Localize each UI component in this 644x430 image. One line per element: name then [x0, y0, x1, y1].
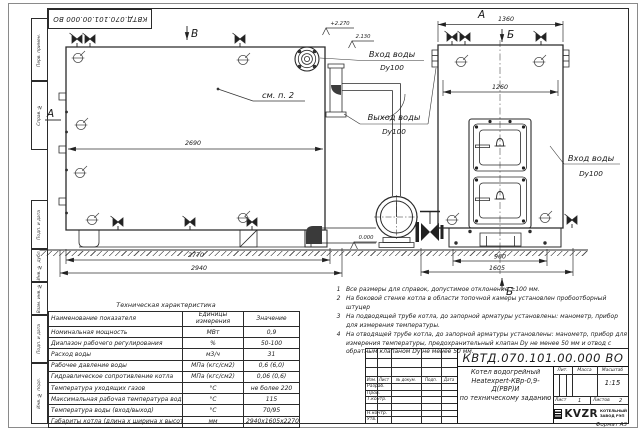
table-header-row: Наименование показателя Единицы измерени…	[49, 312, 300, 327]
elevation-ground: 0.000	[359, 235, 375, 241]
valve-icon	[70, 33, 83, 47]
note-item: 2 На боковой стенке котла в области топо…	[331, 295, 630, 312]
elevation-marks	[323, 28, 378, 249]
format-note: Формат А3	[547, 422, 627, 428]
rev-col-izm: Изм.	[366, 377, 377, 382]
spec-cell: 50-100	[244, 338, 300, 349]
sig-utv: Утв.	[367, 417, 376, 422]
rev-col-podp: Подп.	[421, 377, 441, 382]
spec-cell: 115	[244, 394, 300, 405]
water-inlet-label-right: Вход воды	[568, 153, 615, 163]
lifting-eye-icon	[237, 53, 250, 65]
company-name: КОТЕЛЬНЫЙ ЗАВОД РЭП	[600, 409, 627, 418]
spec-table: Техническая характеристика Наименование …	[48, 301, 284, 428]
title-block-doc-number: КВТД.070.101.00.000 ВО	[458, 349, 628, 366]
fan-blower	[374, 195, 419, 248]
sheet-label: Лист	[555, 398, 566, 403]
sheet-value: 1	[578, 398, 581, 404]
note-number: 2	[331, 295, 346, 312]
spec-header-cell: Значение	[244, 312, 300, 327]
dim-2690: 2690	[185, 140, 201, 147]
rev-col-data: Дата	[441, 377, 457, 382]
spec-cell: 2940х1605х2270	[244, 416, 300, 427]
spec-cell: Номинальная мощность	[49, 327, 183, 338]
notes-block: 1 Все размеры для справок, допустимое от…	[331, 286, 630, 358]
spec-cell: МВт	[183, 327, 244, 338]
sheets-label: Листов	[593, 398, 610, 403]
product-name-line1: Котел водогрейный	[471, 368, 540, 377]
spec-cell: Расход воды	[49, 349, 183, 360]
valve-icon	[83, 33, 96, 47]
sig-nkontr: Н.контр.	[367, 411, 387, 416]
spec-cell: 0,6 (6,0)	[244, 360, 300, 371]
note-text: На подводящей трубе котла, до запорной а…	[346, 313, 630, 330]
dim-1605: 1605	[489, 265, 505, 272]
spec-cell: Рабочее давление воды	[49, 360, 183, 371]
water-inlet-dn-right: Dy100	[579, 169, 603, 178]
table-row: Максимальная рабочая температура воды°С1…	[49, 394, 300, 405]
title-block: Изм. Лист № докум. Подп. Дата Разраб. Пр…	[365, 348, 629, 424]
table-row: Расход водым3/ч31	[49, 349, 300, 360]
spec-header-cell: Единицы измерения	[183, 312, 244, 327]
valve-icon	[534, 31, 547, 45]
dim-2940: 2940	[191, 265, 207, 272]
note-item: 3 На подводящей трубе котла, до запорной…	[331, 313, 630, 330]
spec-cell: Гидравлическое сопротивление котла	[49, 371, 183, 382]
table-row: Диапазон рабочего регулирования%50-100	[49, 338, 300, 349]
spec-cell: м3/ч	[183, 349, 244, 360]
spec-cell: °С	[183, 405, 244, 416]
lifting-eye-icon	[75, 118, 88, 130]
sig-tkontr: Т.контр.	[367, 397, 387, 402]
table-row: Номинальная мощностьМВт0,9	[49, 327, 300, 338]
spec-cell: Диапазон рабочего регулирования	[49, 338, 183, 349]
spec-cell: 70/95	[244, 405, 300, 416]
company-logo-icon	[554, 409, 562, 419]
note-text: На боковой стенке котла в области топочн…	[346, 295, 630, 312]
rev-col-list: Лист	[377, 377, 391, 382]
lifting-eye-icon	[86, 213, 99, 225]
table-row: Габариты котла (длина х ширина х высота)…	[49, 416, 300, 427]
note-number: 3	[331, 313, 346, 330]
water-inlet-dn-top: Dy100	[380, 63, 404, 72]
note-number: 4	[331, 331, 346, 357]
lifting-eye-icon	[539, 211, 552, 223]
note-text: Все размеры для справок, допустимое откл…	[346, 286, 540, 295]
dim-960: 960	[494, 254, 506, 261]
spec-cell: 0,06 (0,6)	[244, 371, 300, 382]
lifting-eye-icon	[72, 51, 85, 63]
drawing-sheet: КВТД.070.101.00.000 ВО Перв. примен. Спр…	[0, 0, 644, 430]
product-name: Котел водогрейный Heatexpert-КВр-0,9-Д(Р…	[458, 368, 553, 408]
inlet-flange-icon	[295, 47, 319, 71]
table-row: Рабочее давление водыМПа (кгс/см2)0,6 (6…	[49, 360, 300, 371]
front-view-title: А	[477, 9, 485, 21]
spec-cell: Температура уходящих газов	[49, 382, 183, 393]
valve-icon	[233, 33, 246, 47]
scale-value: 1:15	[598, 379, 627, 387]
lit-label: Лит.	[553, 368, 572, 373]
mass-label: Масса	[572, 368, 597, 373]
table-row: Температура воды (вход/выход)°С70/95	[49, 405, 300, 416]
company-logo-text: KVZR	[564, 408, 598, 420]
spec-cell: Габариты котла (длина х ширина х высота)	[49, 416, 183, 427]
spec-cell: мм	[183, 416, 244, 427]
valve-icon	[445, 31, 458, 45]
section-b-top: Б	[507, 29, 514, 41]
company-block: KVZR КОТЕЛЬНЫЙ ЗАВОД РЭП	[554, 405, 627, 422]
lifting-eye-icon	[533, 55, 546, 67]
company-name-line2: ЗАВОД РЭП	[600, 414, 627, 418]
table-row: Температура уходящих газов°Сне более 220	[49, 382, 300, 393]
lifting-eye-icon	[455, 55, 468, 67]
valve-icon	[111, 216, 124, 230]
view-a-arrow-label: А	[46, 108, 54, 120]
spec-header-cell: Наименование показателя	[49, 312, 183, 327]
water-inlet-label-top: Вход воды	[369, 49, 416, 59]
pipe-label-leaders	[320, 58, 620, 164]
note-number: 1	[331, 286, 346, 295]
spec-cell: 31	[244, 349, 300, 360]
valve-icon	[458, 31, 471, 45]
spec-cell: °С	[183, 394, 244, 405]
product-name-line3: по техническому заданию	[460, 394, 552, 403]
sig-prov: Пров.	[367, 391, 380, 396]
dim-1260: 1260	[492, 84, 508, 91]
lifting-eye-icon	[446, 213, 459, 225]
elevation-top: +2.270	[330, 21, 350, 27]
spec-cell: Температура воды (вход/выход)	[49, 405, 183, 416]
product-name-line2: Heatexpert-КВр-0,9-Д(РВР)И	[458, 377, 553, 394]
note-item: 1 Все размеры для справок, допустимое от…	[331, 286, 630, 295]
spec-cell: МПа (кгс/см2)	[183, 371, 244, 382]
sheets-value: 2	[619, 398, 622, 404]
spec-cell: не более 220	[244, 382, 300, 393]
valve-icon	[183, 216, 196, 230]
elevation-flue: 2.130	[356, 34, 372, 40]
water-outlet-dn: Dy100	[382, 127, 406, 136]
table-row: Гидравлическое сопротивление котлаМПа (к…	[49, 371, 300, 382]
spec-cell: °С	[183, 382, 244, 393]
company-name-line1: КОТЕЛЬНЫЙ	[600, 409, 627, 413]
spec-cell: 0,9	[244, 327, 300, 338]
see-note-ref: см. п. 2	[262, 90, 294, 100]
scale-label: Масштаб	[597, 368, 628, 373]
dim-2770: 2770	[188, 252, 204, 259]
lifting-eye-icon	[74, 166, 87, 178]
dim-1360: 1360	[498, 16, 514, 23]
water-outlet-label: Выход воды	[368, 112, 421, 122]
spec-cell: Максимальная рабочая температура воды	[49, 394, 183, 405]
rev-col-docnum: № докум.	[391, 377, 421, 382]
spec-table-title: Техническая характеристика	[48, 301, 284, 309]
view-b-label: В	[191, 28, 198, 40]
spec-cell: %	[183, 338, 244, 349]
valve-icon	[565, 214, 578, 228]
spec-cell: МПа (кгс/см2)	[183, 360, 244, 371]
sig-razrab: Разраб.	[367, 384, 385, 389]
side-view-dimensions	[45, 26, 342, 277]
